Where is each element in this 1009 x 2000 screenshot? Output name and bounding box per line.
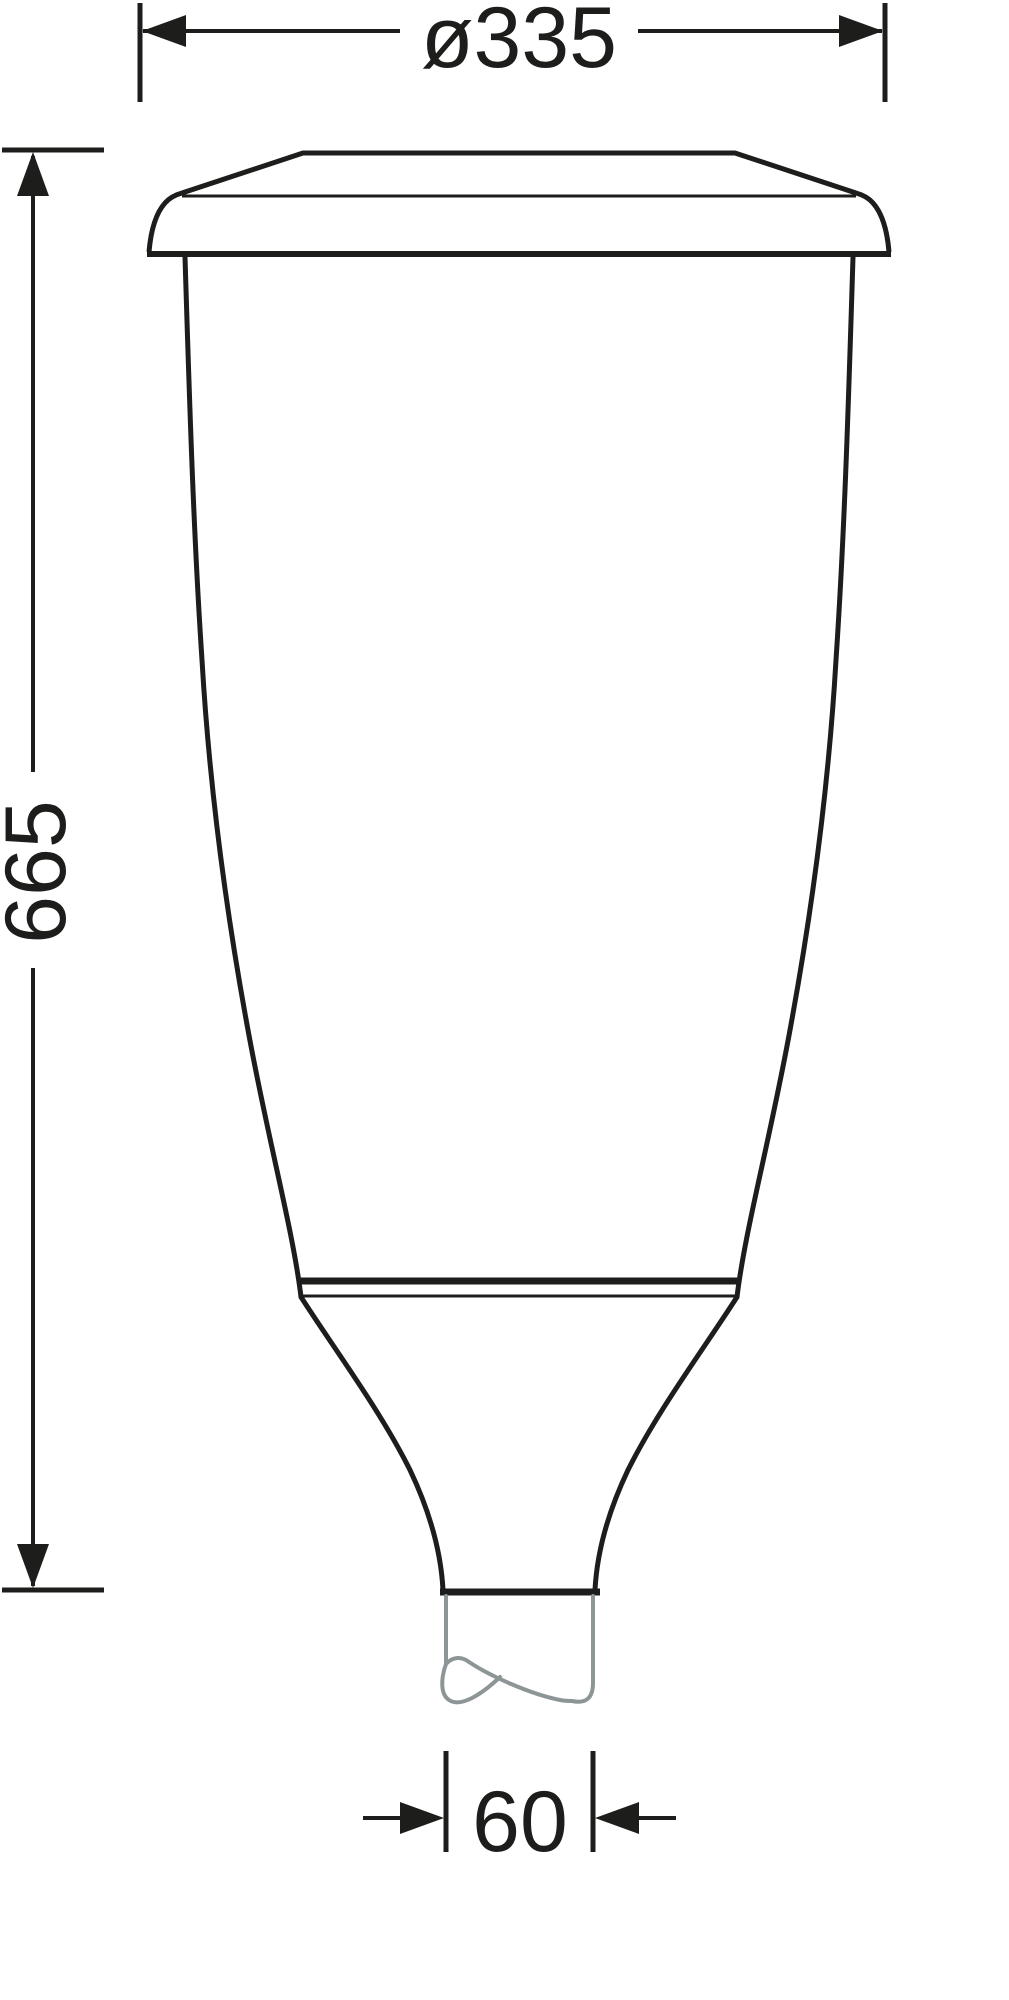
funnel-right-edge <box>595 1297 737 1590</box>
spigot-dimension: 60 <box>363 1751 676 1870</box>
cap-outline <box>149 153 889 252</box>
body-right-edge <box>737 257 853 1297</box>
height-dim-arrow-up-icon <box>17 152 49 196</box>
pole-break <box>442 1596 593 1702</box>
body-left-edge <box>185 257 301 1297</box>
width-dim-arrow-left-icon <box>142 15 186 47</box>
spigot-dim-arrow-left-icon <box>400 1802 444 1834</box>
height-dim-arrow-down-icon <box>17 1544 49 1588</box>
height-dimension: 665 <box>0 150 104 1590</box>
spigot-dim-arrow-right-icon <box>595 1802 639 1834</box>
width-dimension: ø335 <box>140 0 885 102</box>
pole-break-upper-edge <box>446 1658 572 1701</box>
height-dim-label: 665 <box>0 800 84 944</box>
width-dim-label: ø335 <box>421 0 617 86</box>
width-dim-arrow-right-icon <box>839 15 883 47</box>
pole-break-loop <box>442 1664 500 1702</box>
technical-drawing-page: ø335 665 <box>0 0 1009 2000</box>
pole-right-edge <box>572 1596 593 1702</box>
spigot-dim-label: 60 <box>472 1774 568 1870</box>
funnel-left-edge <box>301 1297 443 1590</box>
luminaire-outline <box>147 153 891 1702</box>
luminaire-dimension-drawing: ø335 665 <box>0 0 1009 2000</box>
